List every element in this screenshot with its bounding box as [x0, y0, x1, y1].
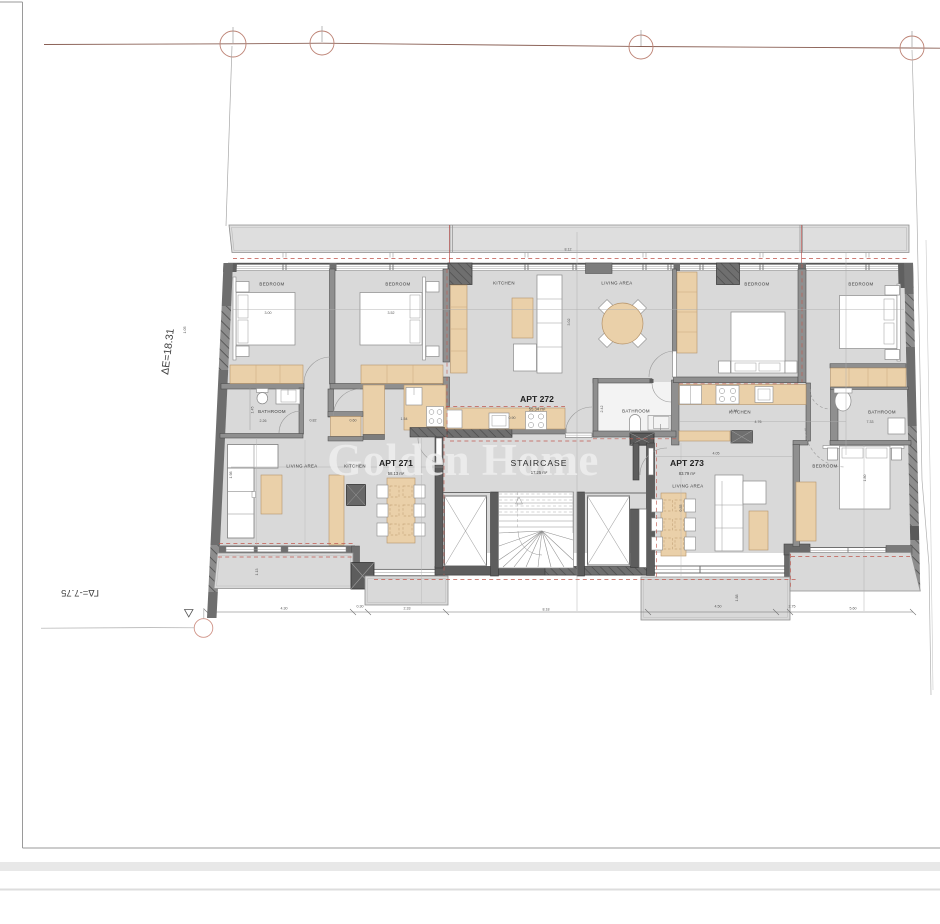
svg-text:3.02: 3.02: [567, 319, 571, 326]
svg-text:0.90: 0.90: [509, 416, 516, 420]
svg-text:1.54: 1.54: [401, 417, 408, 421]
svg-text:55.34 m²: 55.34 m²: [529, 407, 546, 412]
svg-text:BEDROOM: BEDROOM: [848, 282, 873, 287]
svg-text:LIVING AREA: LIVING AREA: [601, 281, 632, 286]
svg-text:2.42: 2.42: [600, 406, 604, 413]
svg-text:2.26: 2.26: [260, 419, 267, 423]
svg-text:4.30: 4.30: [281, 607, 288, 611]
svg-text:KITCHEN: KITCHEN: [729, 410, 751, 415]
svg-text:8.12: 8.12: [565, 248, 572, 252]
svg-text:7.33: 7.33: [867, 420, 874, 424]
svg-text:4.50: 4.50: [715, 605, 722, 609]
svg-text:BEDROOM: BEDROOM: [744, 282, 769, 287]
svg-text:17.25 m²: 17.25 m²: [531, 470, 548, 475]
svg-text:1.98: 1.98: [229, 472, 233, 479]
svg-text:BEDROOM: BEDROOM: [259, 282, 284, 287]
svg-text:BEDROOM: BEDROOM: [812, 464, 837, 469]
svg-text:0.30: 0.30: [357, 605, 364, 609]
svg-text:2.75: 2.75: [789, 605, 796, 609]
svg-text:58.13 m²: 58.13 m²: [388, 471, 405, 476]
svg-text:LIVING AREA: LIVING AREA: [286, 464, 317, 469]
svg-text:BATHROOM: BATHROOM: [868, 410, 896, 415]
svg-text:1.45: 1.45: [251, 407, 255, 414]
svg-text:KITCHEN: KITCHEN: [344, 464, 366, 469]
svg-text:3.00: 3.00: [265, 311, 272, 315]
svg-text:1.05: 1.05: [183, 327, 187, 334]
svg-text:4.05: 4.05: [713, 452, 720, 456]
svg-text:BATHROOM: BATHROOM: [622, 409, 650, 414]
svg-text:1.80: 1.80: [863, 475, 867, 482]
svg-text:APT 271: APT 271: [379, 458, 413, 468]
svg-text:BATHROOM: BATHROOM: [258, 409, 286, 414]
svg-text:1.13: 1.13: [255, 569, 259, 576]
svg-text:0.82: 0.82: [310, 419, 317, 423]
svg-text:BEDROOM: BEDROOM: [385, 282, 410, 287]
svg-text:4.76: 4.76: [755, 420, 762, 424]
svg-text:KITCHEN: KITCHEN: [493, 281, 515, 286]
svg-text:83.79 m²: 83.79 m²: [679, 471, 696, 476]
svg-text:LIVING AREA: LIVING AREA: [672, 484, 703, 489]
svg-text:8.18: 8.18: [543, 608, 550, 612]
svg-text:ΓΔ=-7.75: ΓΔ=-7.75: [61, 587, 99, 598]
svg-text:1.88: 1.88: [735, 595, 739, 602]
svg-text:2.33: 2.33: [404, 607, 411, 611]
svg-text:3.52: 3.52: [388, 311, 395, 315]
svg-text:0.60: 0.60: [350, 419, 357, 423]
svg-text:APT 273: APT 273: [670, 458, 704, 468]
svg-text:5.60: 5.60: [850, 607, 857, 611]
svg-text:0.85: 0.85: [679, 505, 683, 512]
svg-text:STAIRCASE: STAIRCASE: [510, 458, 567, 468]
svg-text:APT 272: APT 272: [520, 394, 554, 404]
